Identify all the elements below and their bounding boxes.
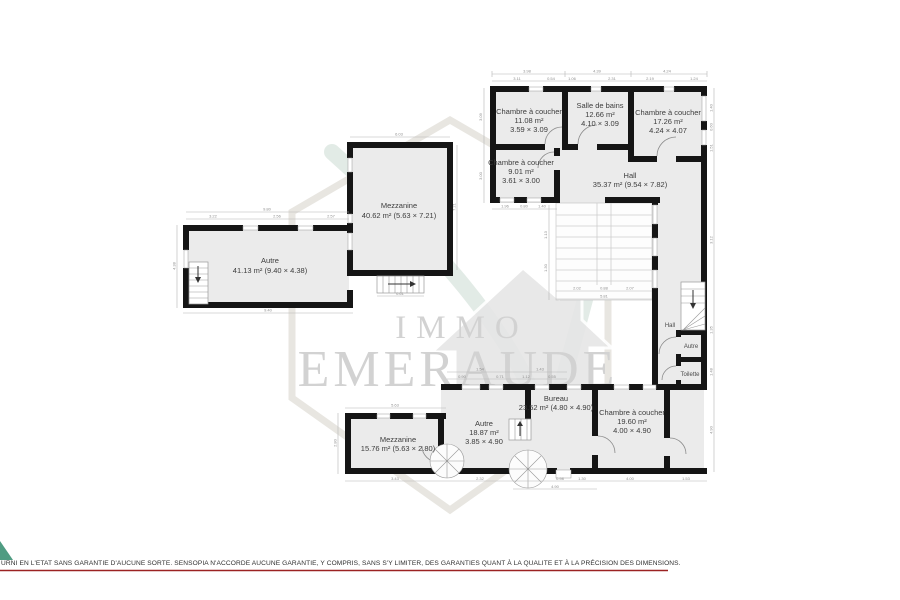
dim-label: 1.12 — [522, 374, 531, 379]
dim-label: 0.55 — [548, 374, 557, 379]
disclaimer-text: URNI EN L'ETAT SANS GARANTIE D'AUCUNE SO… — [1, 558, 681, 567]
room-label-mezzanine-upper: Mezzanine — [381, 201, 417, 210]
dim-label: 5.63 — [391, 403, 400, 408]
dim-label: 0.90 — [458, 374, 467, 379]
dim-label: 4.39 — [593, 69, 602, 74]
dim-label: 2.07 — [626, 286, 635, 291]
room-label-chambre-w: Chambre à coucher — [488, 158, 554, 167]
dim-label: 4.24 — [663, 69, 672, 74]
room-dims: 3.59 × 3.09 — [510, 125, 548, 134]
dim-label: 1.51 — [709, 143, 714, 152]
footer: URNI EN L'ETAT SANS GARANTIE D'AUCUNE SO… — [0, 541, 681, 571]
dim-label: 1.13 — [543, 230, 548, 239]
room-area: 19.60 m² — [617, 417, 647, 426]
dim-label: 2.80 — [333, 438, 338, 447]
room-area: 35.37 m² (9.54 × 7.82) — [593, 180, 668, 189]
dim-label: 9.40 — [264, 308, 273, 313]
room-area: 41.13 m² (9.40 × 4.38) — [233, 266, 308, 275]
dim-label: 4.90 — [709, 425, 714, 434]
dim-label: 1.48 — [709, 367, 714, 376]
dim-label: 1.43 — [536, 367, 545, 372]
room-area: 18.87 m² — [469, 428, 499, 437]
dim-label: 3.43 — [391, 476, 400, 481]
dim-label: 0.54 — [547, 76, 556, 81]
room-dims: 4.24 × 4.07 — [649, 126, 687, 135]
room-label-toilette: Toilette — [680, 372, 700, 378]
green-corner-mark — [0, 541, 13, 560]
dim-label: 2.32 — [476, 476, 485, 481]
dim-label: 4.00 — [626, 476, 635, 481]
room-area: 23.52 m² (4.80 × 4.90) — [519, 403, 594, 412]
room-label-autre-large: Autre — [261, 256, 279, 265]
room-area: 12.66 m² — [585, 110, 615, 119]
dim-label: 1.96 — [501, 204, 510, 209]
room-dims: 4.00 × 4.90 — [613, 426, 651, 435]
dim-label: 2.57 — [327, 214, 336, 219]
dim-label: 1.35 — [709, 325, 714, 334]
dim-label: 1.53 — [682, 476, 691, 481]
room-label-hall-main: Hall — [624, 171, 637, 180]
room-label-mezzanine-lower: Mezzanine — [380, 435, 416, 444]
dim-label: 1.06 — [568, 76, 577, 81]
room-label-chambre-nw: Chambre à coucher — [496, 107, 562, 116]
room-label-bureau: Bureau — [544, 394, 568, 403]
dim-label: 3.22 — [209, 214, 218, 219]
dim-label: 4.38 — [172, 261, 177, 270]
dim-label: 7.21 — [452, 202, 457, 211]
room-dims: 3.61 × 3.00 — [502, 176, 540, 185]
dim-label: 1.54 — [476, 367, 485, 372]
room-label-salle-de-bains: Salle de bains — [576, 101, 623, 110]
dim-label: 2.56 — [273, 214, 282, 219]
dim-label: 1.40 — [709, 103, 714, 112]
room-label-autre-bottom: Autre — [475, 419, 493, 428]
dim-label: 1.30 — [578, 476, 587, 481]
room-area: 40.62 m² (5.63 × 7.21) — [362, 211, 437, 220]
dim-label: 2.02 — [573, 286, 582, 291]
room-label-chambre-ne: Chambre à coucher — [635, 108, 701, 117]
dim-label: 1.24 — [690, 76, 699, 81]
room-area: 15.76 m² (5.63 × 2.80) — [361, 444, 436, 453]
room-area: 9.01 m² — [508, 167, 534, 176]
room-dims: 3.85 × 4.90 — [465, 437, 503, 446]
small-stair-bureau — [509, 419, 531, 440]
spiral-stair-middle — [509, 450, 547, 488]
floor-plan-svg: IMMO EMERAUDE — [0, 0, 900, 600]
room-label-hall-small: Hall — [665, 323, 675, 329]
dim-label: 3.09 — [478, 112, 483, 121]
dim-label: 2.31 — [608, 76, 617, 81]
floor-plan-image: IMMO EMERAUDE — [0, 0, 900, 600]
room-label-chambre-s: Chambre à coucher — [599, 408, 665, 417]
dim-label: 0.80 — [520, 204, 529, 209]
dim-label: 1.40 — [538, 204, 547, 209]
dim-label: 3.98 — [523, 69, 532, 74]
room-area: 17.26 m² — [653, 117, 683, 126]
dim-label: 0.98 — [556, 476, 565, 481]
dim-label: 3.00 — [478, 171, 483, 180]
dim-label: 3.12 — [709, 235, 714, 244]
straight-stair-autre-large — [189, 262, 208, 304]
dim-label: 9.80 — [263, 207, 272, 212]
dim-label: 0.60 — [709, 122, 714, 131]
room-area: 11.08 m² — [514, 116, 544, 125]
dim-label: 0.71 — [496, 374, 505, 379]
winder-stair-corridor — [681, 282, 705, 330]
dim-label: 3.11 — [513, 76, 521, 81]
room-dims: 4.10 × 3.09 — [581, 119, 619, 128]
dim-label: 1.30 — [543, 263, 548, 272]
dim-label: 0.61 — [396, 291, 405, 296]
dim-label: 0.88 — [600, 286, 609, 291]
room-label-autre-small: Autre — [684, 344, 699, 350]
dim-label: 6.03 — [395, 132, 404, 137]
dim-label: 2.19 — [646, 76, 655, 81]
dim-label: 4.90 — [551, 484, 560, 489]
dim-label: 5.81 — [600, 294, 609, 299]
